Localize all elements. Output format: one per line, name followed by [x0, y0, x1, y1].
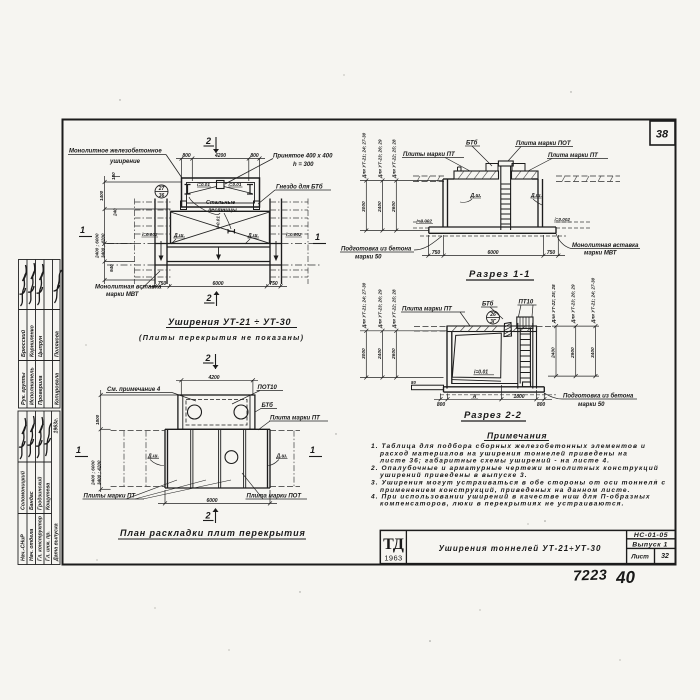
- svg-text:Уширения УТ-21 ÷ УТ-30: Уширения УТ-21 ÷ УТ-30: [168, 317, 291, 327]
- svg-text:Разрез 2-2: Разрез 2-2: [464, 410, 522, 421]
- svg-text:БТб: БТб: [262, 402, 274, 409]
- svg-text:Копировала: Копировала: [54, 373, 60, 405]
- svg-text:2900: 2900: [570, 347, 576, 359]
- svg-text:Проверила: Проверила: [38, 375, 44, 405]
- svg-text:1963г.: 1963г.: [54, 418, 60, 434]
- svg-text:4. При использовании уширени: 4. При использовании уширений в качестве…: [370, 492, 651, 500]
- svg-text:2400: 2400: [377, 348, 383, 360]
- svg-text:Корниленко: Корниленко: [29, 324, 35, 357]
- svg-text:800: 800: [182, 153, 191, 159]
- svg-text:800: 800: [250, 153, 259, 159]
- svg-text:1: 1: [310, 445, 315, 455]
- svg-text:Плита марки ПОТ: Плита марки ПОТ: [247, 494, 303, 500]
- svg-text:Выпуск 1: Выпуск 1: [632, 541, 668, 548]
- svg-text:7223: 7223: [573, 567, 608, 584]
- svg-text:Монолитная вставка: Монолитная вставка: [572, 243, 639, 249]
- svg-text:1800: 1800: [95, 414, 100, 425]
- svg-text:Плита марки ПТ: Плита марки ПТ: [270, 416, 321, 422]
- svg-text:6000: 6000: [487, 250, 498, 256]
- svg-text:Гнездо для БТб: Гнездо для БТб: [276, 184, 323, 191]
- svg-text:240: 240: [113, 208, 118, 217]
- svg-text:Полякова: Полякова: [54, 331, 60, 357]
- svg-text:1: 1: [76, 445, 81, 455]
- svg-text:i=0.002: i=0.002: [142, 232, 158, 237]
- svg-text:27: 27: [158, 186, 165, 192]
- svg-text:2400 ; 6000: 2400 ; 6000: [91, 460, 96, 486]
- svg-text:2600: 2600: [391, 201, 397, 213]
- svg-text:3. Уширения могут устраивать: 3. Уширения могут устраиваться в обе сто…: [371, 479, 666, 487]
- svg-text:2400 ; 6000: 2400 ; 6000: [95, 233, 100, 259]
- svg-text:См. примечание 4: См. примечание 4: [107, 387, 161, 393]
- svg-text:Для УТ-21; 24; 27-30: Для УТ-21; 24; 27-30: [590, 277, 595, 324]
- svg-text:Лист: Лист: [630, 554, 649, 561]
- svg-text:Плита марки ПТ: Плита марки ПТ: [548, 153, 599, 159]
- svg-text:расход материалов на уширен: расход материалов на уширения тоннелей п…: [379, 449, 628, 457]
- svg-text:Для УТ-22; 25; 28: Для УТ-22; 25; 28: [391, 139, 396, 179]
- svg-text:1963: 1963: [384, 554, 402, 563]
- svg-text:Гродзинский: Гродзинский: [37, 476, 44, 510]
- svg-text:4200: 4200: [214, 153, 226, 159]
- svg-text:ПОТ10: ПОТ10: [258, 385, 278, 391]
- svg-text:Для УТ-23; 26; 29: Для УТ-23; 26; 29: [378, 139, 383, 179]
- svg-text:750: 750: [269, 281, 278, 287]
- svg-text:4200: 4200: [207, 375, 219, 381]
- svg-text:Плита марки ПОТ: Плита марки ПОТ: [516, 141, 572, 147]
- svg-text:2400: 2400: [551, 347, 557, 359]
- svg-text:3400 ; 4200: 3400 ; 4200: [97, 460, 102, 485]
- svg-text:i=0.002: i=0.002: [417, 219, 433, 224]
- svg-text:Принятое 400 х 400: Принятое 400 х 400: [273, 154, 333, 160]
- svg-text:i=0.01: i=0.01: [216, 216, 221, 229]
- svg-text:компенсаторов, люки в перек: компенсаторов, люки в перекрытиях не уст…: [380, 501, 624, 508]
- svg-text:Подготовка из бетона: Подготовка из бетона: [341, 246, 412, 253]
- svg-text:лестницы: лестницы: [207, 208, 237, 214]
- svg-text:ТД: ТД: [383, 536, 404, 553]
- svg-text:2: 2: [205, 353, 211, 363]
- svg-text:Примечания: Примечания: [487, 431, 547, 441]
- svg-text:листе 36; габаритные схемы: листе 36; габаритные схемы уширений - на…: [379, 457, 610, 465]
- svg-text:38: 38: [656, 129, 669, 141]
- svg-text:марки МВТ: марки МВТ: [584, 251, 618, 257]
- svg-text:Гл. конструктор: Гл. конструктор: [38, 516, 44, 561]
- svg-text:180: 180: [111, 172, 116, 180]
- svg-text:750: 750: [432, 250, 441, 256]
- svg-text:Соломоницкий: Соломоницкий: [19, 470, 26, 510]
- svg-text:марки МВТ: марки МВТ: [106, 292, 140, 298]
- svg-text:36: 36: [159, 193, 165, 199]
- svg-text:2: 2: [205, 511, 211, 521]
- svg-text:800: 800: [537, 402, 546, 408]
- svg-text:Для УТ-23; 26; 29: Для УТ-23; 26; 29: [571, 284, 576, 324]
- svg-text:БТб: БТб: [482, 301, 494, 308]
- svg-text:h = 300: h = 300: [293, 162, 314, 168]
- svg-text:40: 40: [615, 568, 636, 588]
- svg-text:i=0.002: i=0.002: [555, 217, 571, 222]
- svg-text:940: 940: [109, 264, 114, 272]
- svg-text:3000: 3000: [361, 201, 367, 212]
- svg-text:3Г: 3Г: [490, 319, 497, 325]
- svg-text:3000: 3000: [361, 348, 367, 359]
- svg-text:6000: 6000: [212, 281, 223, 287]
- svg-text:2600: 2600: [391, 348, 397, 360]
- svg-text:Нач. отдела: Нач. отдела: [29, 529, 35, 561]
- svg-text:Исполнитель: Исполнитель: [29, 367, 35, 405]
- svg-text:(Плиты перекрытия не показаны): (Плиты перекрытия не показаны): [139, 333, 304, 342]
- svg-text:i=0.01: i=0.01: [197, 182, 210, 187]
- svg-text:Для УТ-21; 24; 27-30: Для УТ-21; 24; 27-30: [361, 282, 366, 329]
- svg-text:Кощутева: Кощутева: [45, 483, 51, 510]
- svg-text:марки 50: марки 50: [578, 402, 605, 408]
- svg-text:Брюсский: Брюсский: [20, 329, 27, 357]
- svg-text:уширение: уширение: [109, 159, 141, 165]
- svg-text:3400 ; 4200: 3400 ; 4200: [101, 233, 106, 258]
- svg-text:1. Таблица для подбора сбор: 1. Таблица для подбора сборных железобет…: [371, 442, 646, 450]
- svg-text:i=0.002: i=0.002: [286, 232, 302, 237]
- svg-text:Дата выпуска: Дата выпуска: [54, 523, 60, 562]
- svg-text:марки 50: марки 50: [355, 255, 382, 261]
- svg-text:1400: 1400: [99, 190, 104, 201]
- svg-text:БТб: БТб: [466, 140, 478, 147]
- svg-text:Рук. группы: Рук. группы: [21, 372, 27, 405]
- svg-text:Нач.-СНиР: Нач.-СНиР: [20, 534, 26, 561]
- svg-text:80: 80: [411, 380, 416, 385]
- svg-text:3400: 3400: [590, 347, 596, 358]
- svg-text:1: 1: [315, 232, 320, 242]
- svg-text:2: 2: [206, 293, 212, 303]
- svg-text:Плиты марки ПТ: Плиты марки ПТ: [84, 494, 137, 500]
- svg-text:2. Опалубочные и арматурные: 2. Опалубочные и арматурные чертежи моно…: [370, 464, 659, 472]
- svg-text:Плиты марки ПТ: Плиты марки ПТ: [403, 152, 456, 158]
- svg-text:800: 800: [437, 402, 446, 408]
- svg-text:уширений приведены в выпуск: уширений приведены в выпуске 3.: [379, 471, 528, 479]
- svg-text:Подготовка из бетона: Подготовка из бетона: [563, 393, 634, 400]
- svg-text:НС-01-05: НС-01-05: [634, 532, 668, 539]
- svg-text:6000: 6000: [206, 498, 217, 504]
- svg-text:i=0.01: i=0.01: [229, 182, 242, 187]
- svg-text:Для УТ-22; 25; 28: Для УТ-22; 25; 28: [391, 289, 396, 329]
- svg-text:Для УТ-23; 26; 29: Для УТ-23; 26; 29: [378, 289, 383, 329]
- svg-text:Стальные: Стальные: [206, 200, 235, 206]
- svg-text:Плита марки ПТ: Плита марки ПТ: [402, 307, 453, 313]
- svg-text:Цыпрун: Цыпрун: [38, 335, 44, 357]
- svg-text:750: 750: [547, 250, 556, 256]
- svg-text:ПТ10: ПТ10: [519, 300, 534, 306]
- svg-text:План раскладки плит перекрытия: План раскладки плит перекрытия: [120, 528, 306, 538]
- svg-text:Монолитная вставка: Монолитная вставка: [95, 285, 162, 291]
- svg-text:Для УТ-22; 25; 28: Для УТ-22; 25; 28: [551, 284, 556, 324]
- svg-text:Монолитное железобетонное: Монолитное железобетонное: [69, 148, 162, 155]
- svg-text:32: 32: [661, 553, 669, 560]
- svg-text:Гл. инж. пр.: Гл. инж. пр.: [45, 531, 51, 561]
- svg-text:26: 26: [489, 312, 496, 318]
- svg-text:1: 1: [80, 225, 85, 235]
- svg-text:Уширения тоннелей УТ-21÷УТ-30: Уширения тоннелей УТ-21÷УТ-30: [439, 544, 602, 553]
- svg-text:1800: 1800: [513, 394, 524, 400]
- svg-text:2: 2: [205, 136, 211, 146]
- svg-text:Для УТ-21; 24; 27-30: Для УТ-21; 24; 27-30: [361, 132, 366, 179]
- svg-text:2400: 2400: [377, 201, 383, 213]
- svg-text:Разрез 1-1: Разрез 1-1: [469, 269, 531, 280]
- svg-text:Бандас: Бандас: [29, 491, 35, 510]
